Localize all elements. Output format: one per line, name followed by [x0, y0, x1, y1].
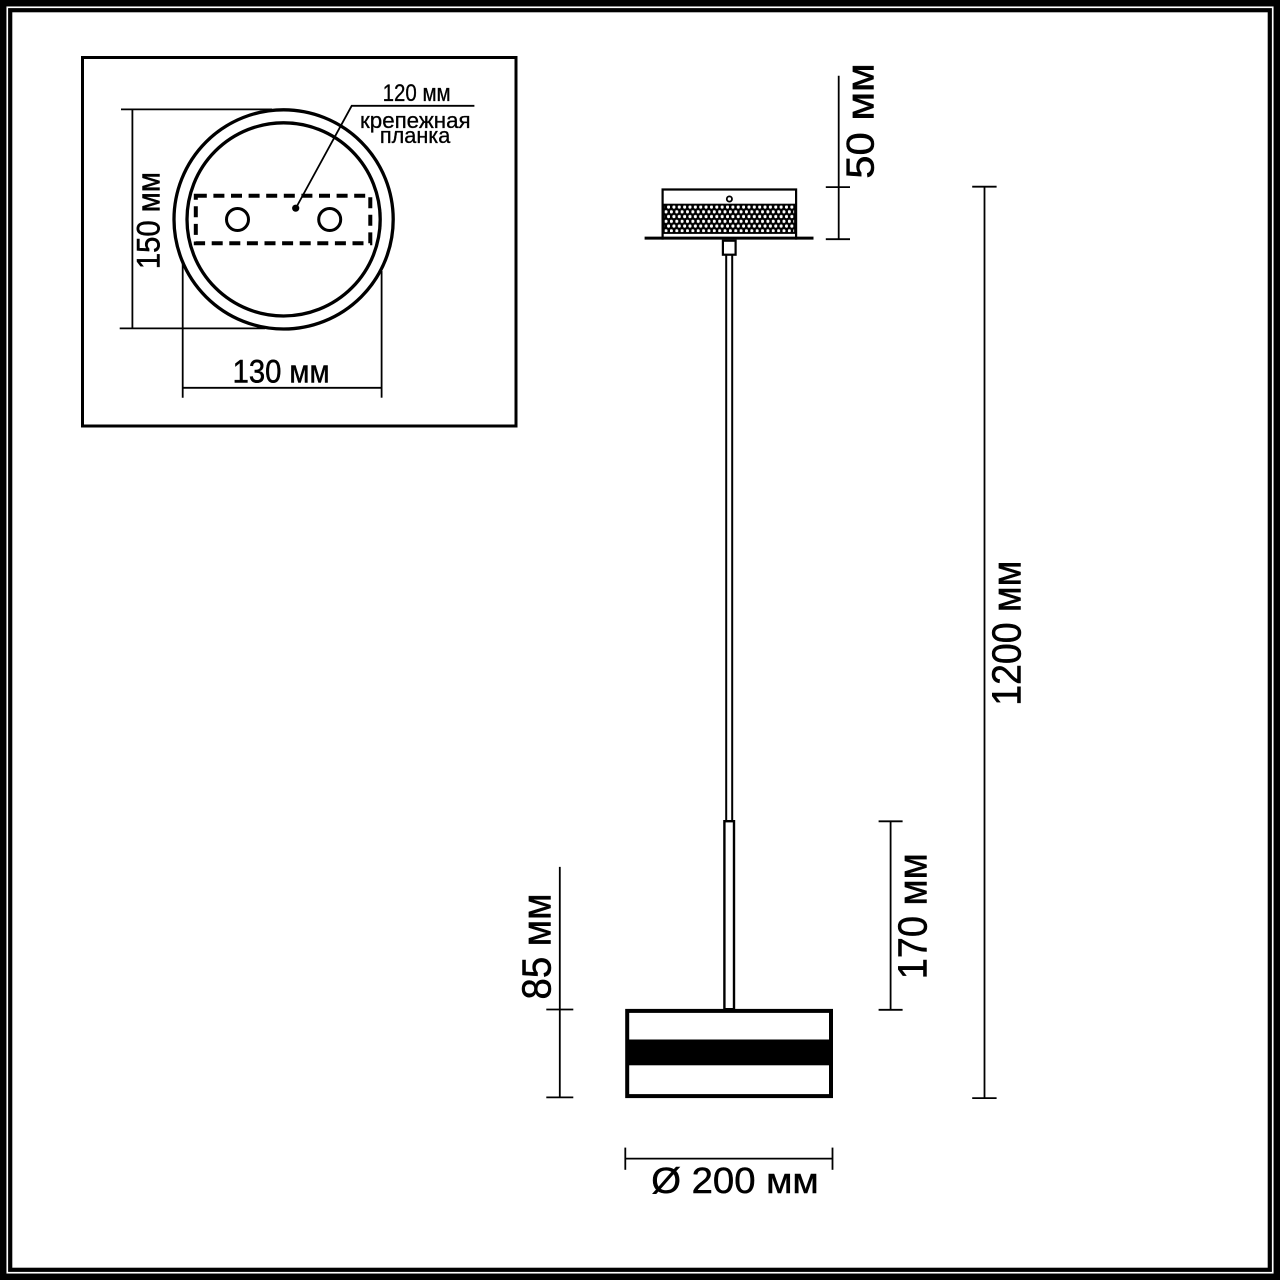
svg-text:85 мм: 85 мм	[514, 894, 560, 1000]
svg-text:Ø 200 мм: Ø 200 мм	[651, 1160, 819, 1201]
svg-text:планка: планка	[380, 123, 451, 148]
svg-text:50 мм: 50 мм	[840, 63, 883, 179]
svg-text:1200 мм: 1200 мм	[984, 561, 1030, 706]
svg-text:170 мм: 170 мм	[890, 853, 936, 979]
svg-text:120 мм: 120 мм	[383, 80, 451, 107]
svg-text:150 мм: 150 мм	[131, 172, 167, 269]
svg-text:130 мм: 130 мм	[233, 354, 330, 390]
